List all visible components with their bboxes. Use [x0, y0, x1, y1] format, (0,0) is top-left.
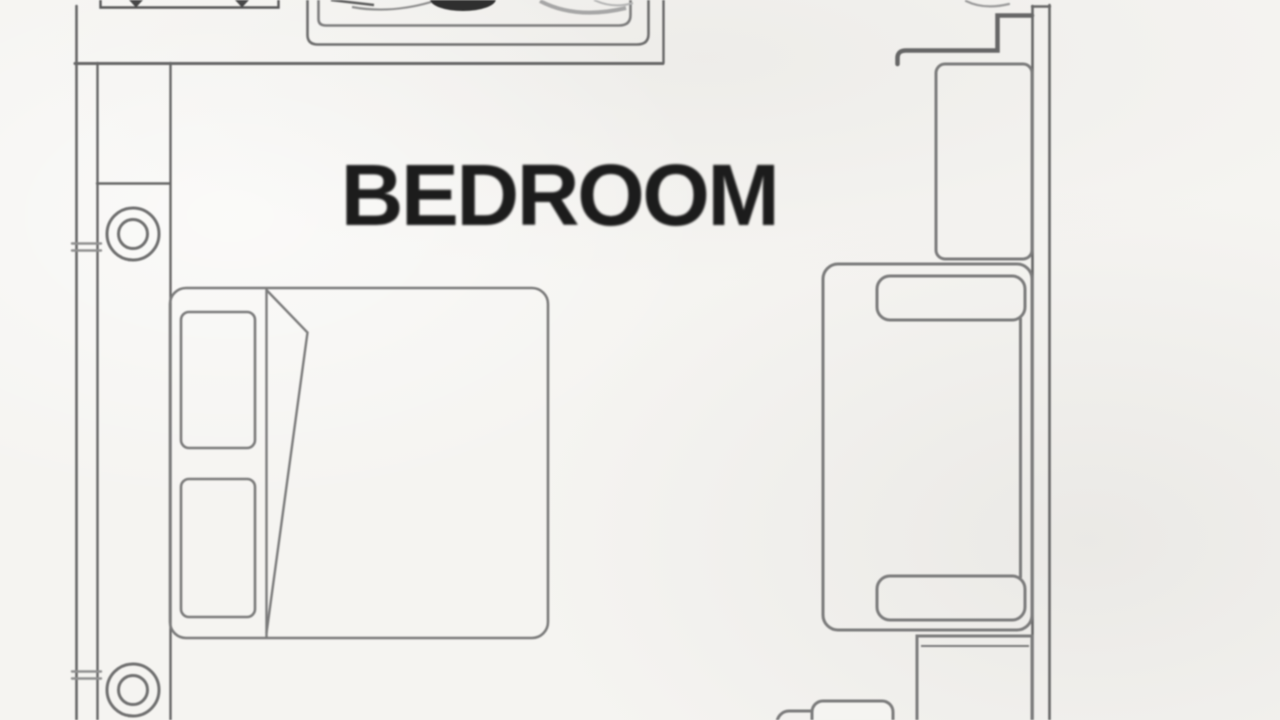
bed-outline: [170, 288, 548, 638]
side-cabinet: [917, 636, 1032, 720]
door-swing-arc: [966, 1, 1009, 6]
walls: [72, 0, 1050, 720]
wall-light-lower-icon: [107, 664, 159, 716]
stool-front: [812, 701, 893, 720]
sofa-armrest-bottom: [877, 576, 1025, 620]
tall-cabinet: [936, 64, 1032, 259]
vanity-unit: [308, 0, 649, 45]
room-label: BEDROOM: [337, 152, 781, 240]
floorplan: BEDROOM: [0, 0, 1280, 720]
folded-blanket: [267, 290, 308, 633]
sofa: [823, 264, 1032, 630]
vanity-detail-line: [331, 0, 374, 5]
pillow-top: [181, 312, 255, 448]
floorplan-canvas: [0, 0, 1280, 720]
stool-pair: [777, 701, 893, 720]
vanity-soft-curve: [540, 1, 626, 13]
closet-cutoff: [101, 0, 279, 8]
sofa-armrest-top: [877, 276, 1025, 320]
door-step-wall: [898, 16, 1033, 65]
vanity-dark-object: [430, 0, 496, 11]
wall-light-upper-icon: [107, 208, 159, 260]
vanity-soft-curve-2: [594, 0, 633, 5]
double-bed: [170, 288, 548, 638]
pillow-bottom: [181, 479, 255, 617]
